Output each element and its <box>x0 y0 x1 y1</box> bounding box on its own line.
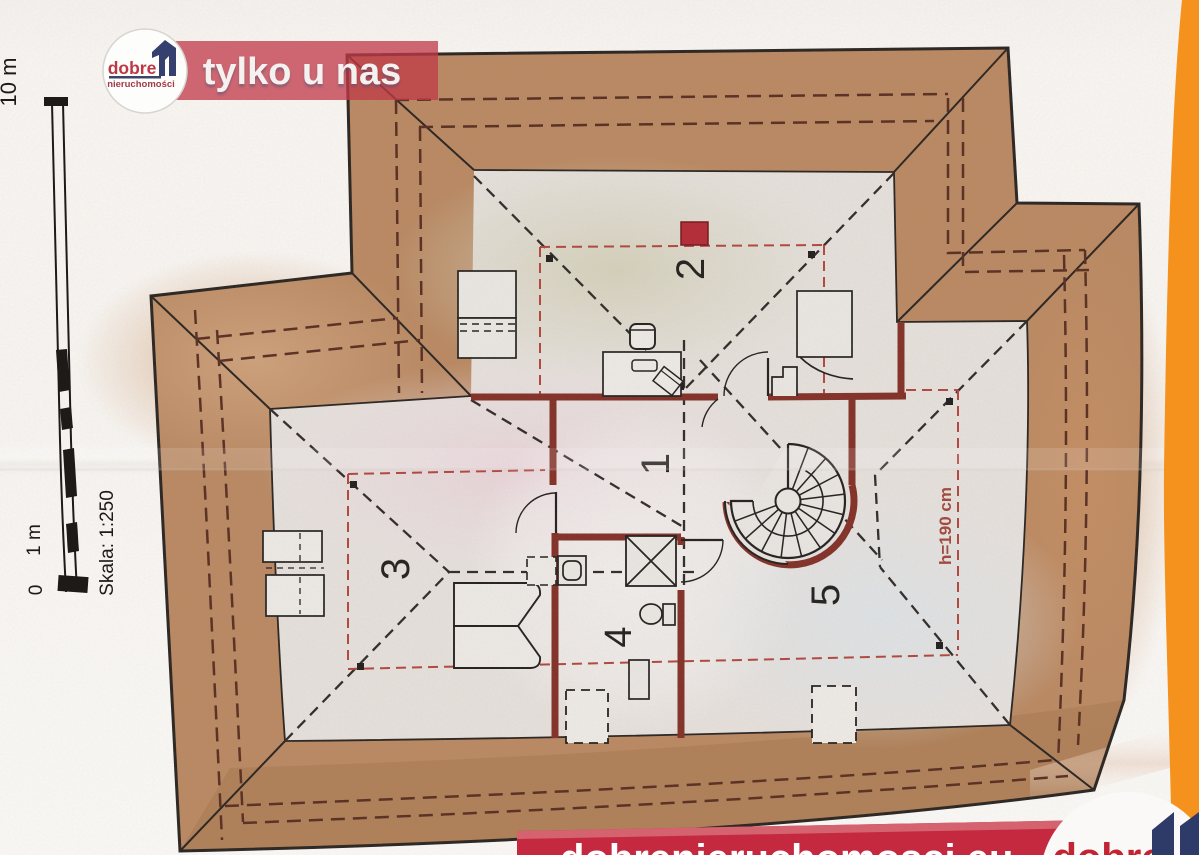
svg-text:Skala: 1:250: Skala: 1:250 <box>97 490 118 596</box>
svg-text:1 m: 1 m <box>24 524 45 556</box>
svg-text:dobre: dobre <box>108 58 157 78</box>
svg-text:nieruchomości: nieruchomości <box>107 79 175 90</box>
svg-text:0: 0 <box>26 585 47 596</box>
svg-text:10 m: 10 m <box>0 58 21 107</box>
svg-text:dobre: dobre <box>1052 836 1163 855</box>
svg-text:dobrenieruchomosci.eu: dobrenieruchomosci.eu <box>560 837 1013 855</box>
svg-text:tylko u nas: tylko u nas <box>203 51 402 93</box>
